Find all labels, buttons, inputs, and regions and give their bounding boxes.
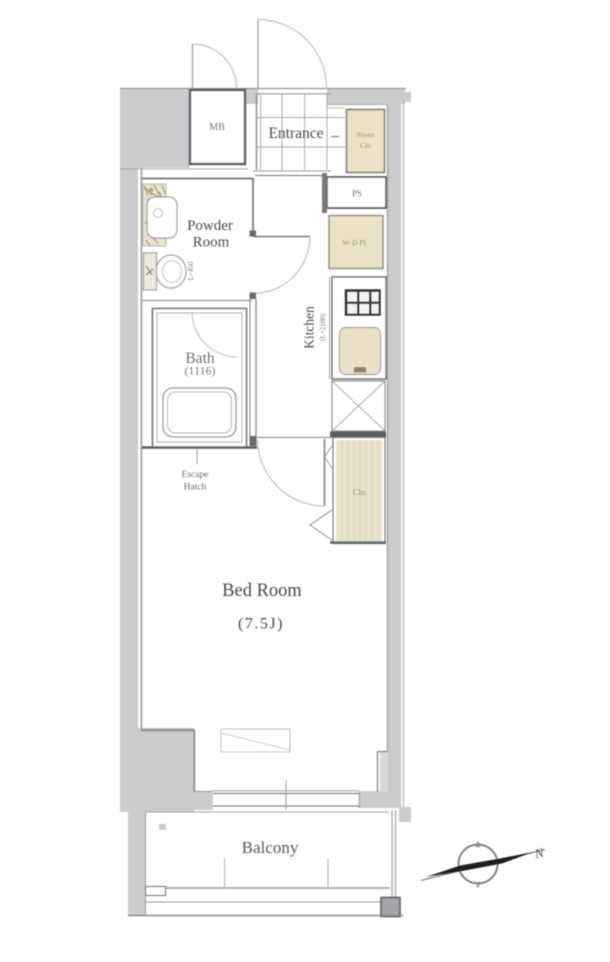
svg-text:(1116): (1116) bbox=[184, 364, 215, 378]
svg-text:Clo: Clo bbox=[360, 141, 371, 150]
svg-text:Room: Room bbox=[193, 235, 230, 251]
svg-text:Bed Room: Bed Room bbox=[222, 581, 302, 601]
svg-text:W·D Pl.: W·D Pl. bbox=[343, 238, 368, 247]
svg-text:Escape: Escape bbox=[182, 470, 209, 480]
svg-text:Kitchen: Kitchen bbox=[302, 306, 317, 349]
svg-text:PS: PS bbox=[352, 189, 362, 199]
svg-text:Hatch: Hatch bbox=[184, 483, 207, 493]
svg-text:Entrance: Entrance bbox=[268, 125, 323, 142]
svg-text:(L=2100): (L=2100) bbox=[319, 313, 327, 341]
svg-text:Powder: Powder bbox=[187, 218, 233, 234]
svg-text:(7.5J): (7.5J) bbox=[238, 616, 284, 633]
svg-text:MB: MB bbox=[209, 122, 225, 133]
svg-text:Clo.: Clo. bbox=[353, 487, 367, 497]
svg-text:L=450: L=450 bbox=[187, 261, 195, 280]
svg-text:Balcony: Balcony bbox=[242, 838, 299, 857]
svg-text:Shoes: Shoes bbox=[357, 130, 375, 139]
